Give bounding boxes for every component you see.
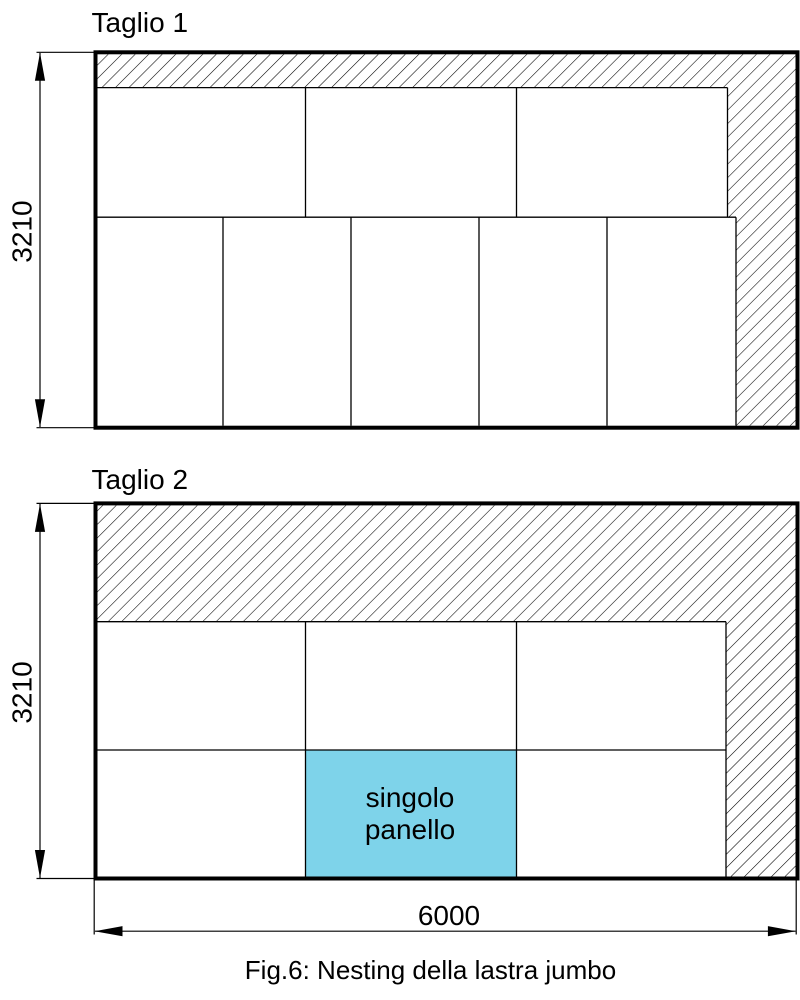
svg-text:singolo: singolo [366, 782, 455, 813]
svg-text:panello: panello [365, 814, 455, 845]
svg-text:6000: 6000 [418, 900, 480, 931]
svg-text:Taglio 2: Taglio 2 [92, 464, 189, 495]
svg-text:Fig.6: Nesting della lastra ju: Fig.6: Nesting della lastra jumbo [245, 955, 616, 985]
svg-text:3210: 3210 [7, 200, 38, 262]
svg-text:Taglio 1: Taglio 1 [92, 7, 189, 38]
svg-text:3210: 3210 [7, 661, 38, 723]
